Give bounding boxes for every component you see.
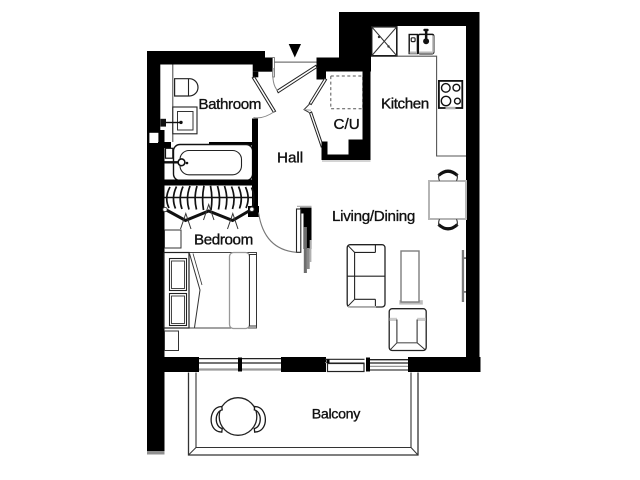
svg-text:Kitchen: Kitchen: [381, 96, 429, 113]
svg-text:C/U: C/U: [334, 116, 360, 133]
svg-text:Bathroom: Bathroom: [198, 96, 261, 113]
svg-text:Balcony: Balcony: [312, 407, 362, 423]
svg-text:Living/Dining: Living/Dining: [332, 208, 415, 225]
svg-text:Hall: Hall: [277, 150, 303, 167]
svg-text:Bedroom: Bedroom: [194, 232, 253, 249]
